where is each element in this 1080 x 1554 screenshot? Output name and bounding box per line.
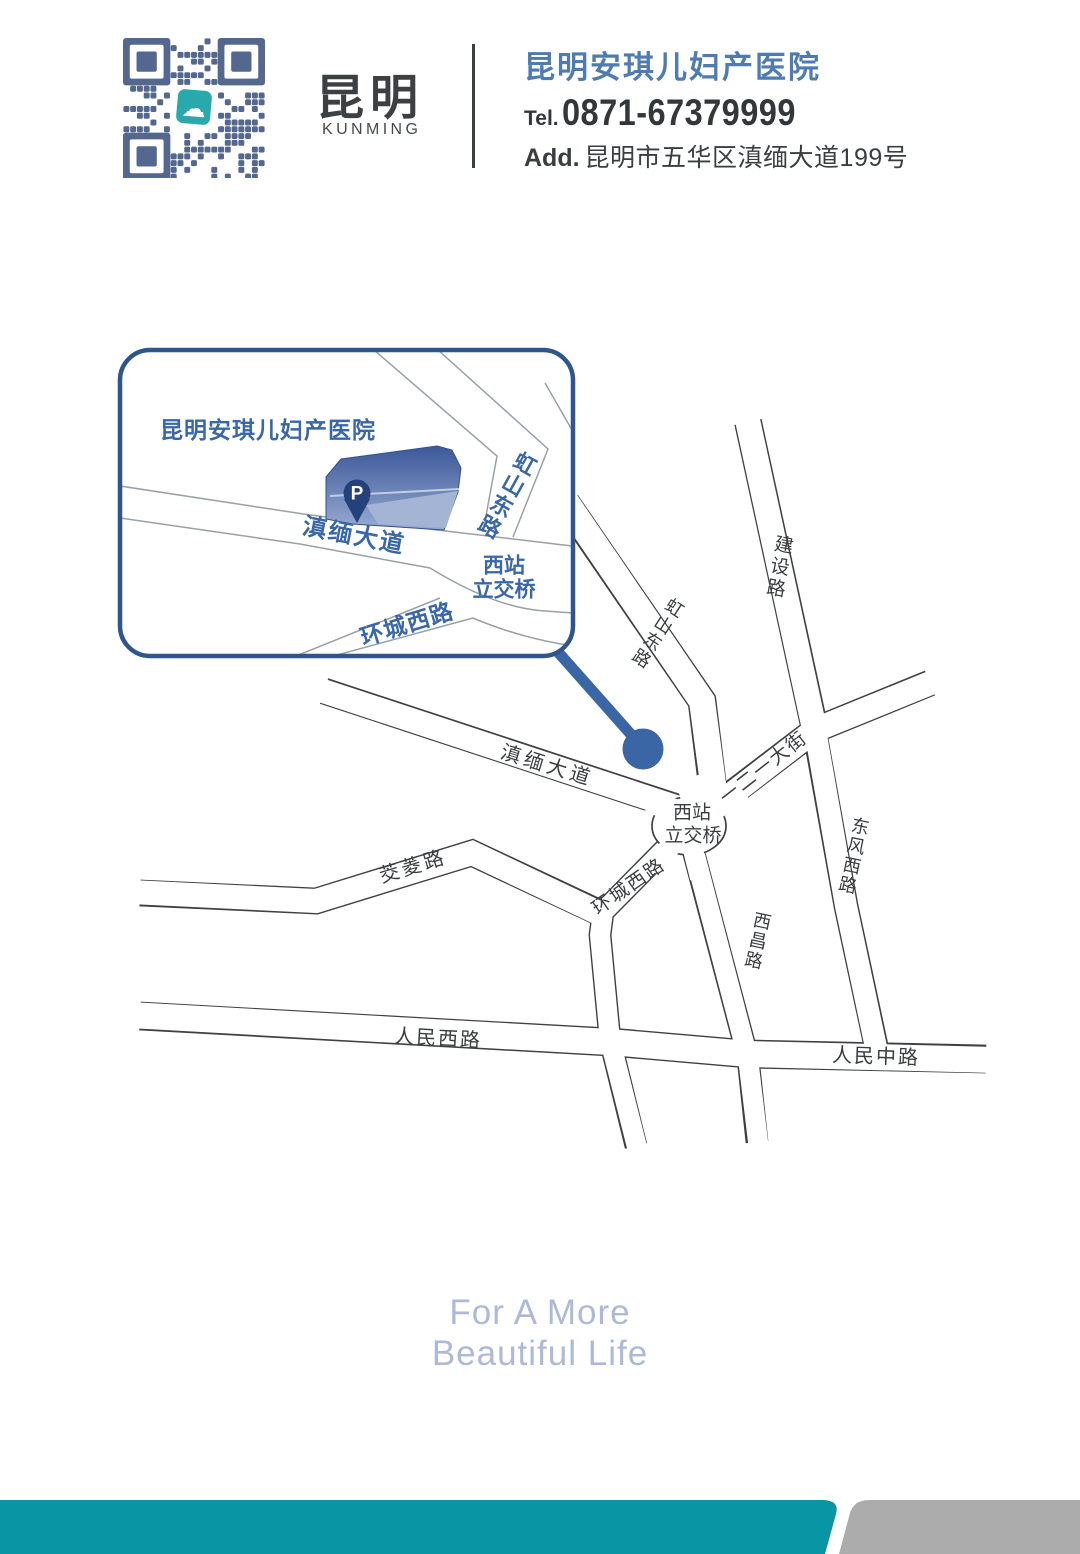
label-interchange-main-2: 立交桥 bbox=[664, 825, 721, 847]
footer-gray-bar bbox=[839, 1500, 1080, 1554]
inset-label-interchange-2: 立交桥 bbox=[473, 578, 537, 602]
label-huancheng-main: 环城西路 bbox=[588, 853, 669, 919]
label-interchange-main-1: 西站 bbox=[673, 802, 711, 824]
location-dot bbox=[623, 729, 664, 770]
label-renmin-west: 人民西路 bbox=[393, 1025, 482, 1053]
slogan-line2: Beautiful Life bbox=[0, 1333, 1080, 1374]
label-xichang: 西昌路 bbox=[741, 910, 773, 973]
parking-pin-label: P bbox=[351, 484, 364, 505]
inset-map: P 昆明安琪儿妇产医院 滇缅大道 虹山东路 西站 立交桥 环城西路 bbox=[120, 350, 576, 658]
label-yieryi: 一二一大街 bbox=[716, 727, 812, 809]
inset-title: 昆明安琪儿妇产医院 bbox=[160, 417, 376, 443]
label-renmin-middle: 人民中路 bbox=[832, 1043, 921, 1069]
inset-label-interchange-1: 西站 bbox=[483, 554, 525, 578]
footer-bars bbox=[0, 1494, 1080, 1554]
slogan-line1: For A More bbox=[0, 1292, 1080, 1333]
flyer-page: ☁ 昆明 KUNMING 昆明安琪儿妇产医院 Tel. 0871-6737999… bbox=[0, 0, 1080, 1554]
footer-teal-bar bbox=[0, 1500, 837, 1554]
slogan: For A More Beautiful Life bbox=[0, 1292, 1080, 1374]
label-dianmian-main: 滇缅大道 bbox=[498, 740, 597, 790]
